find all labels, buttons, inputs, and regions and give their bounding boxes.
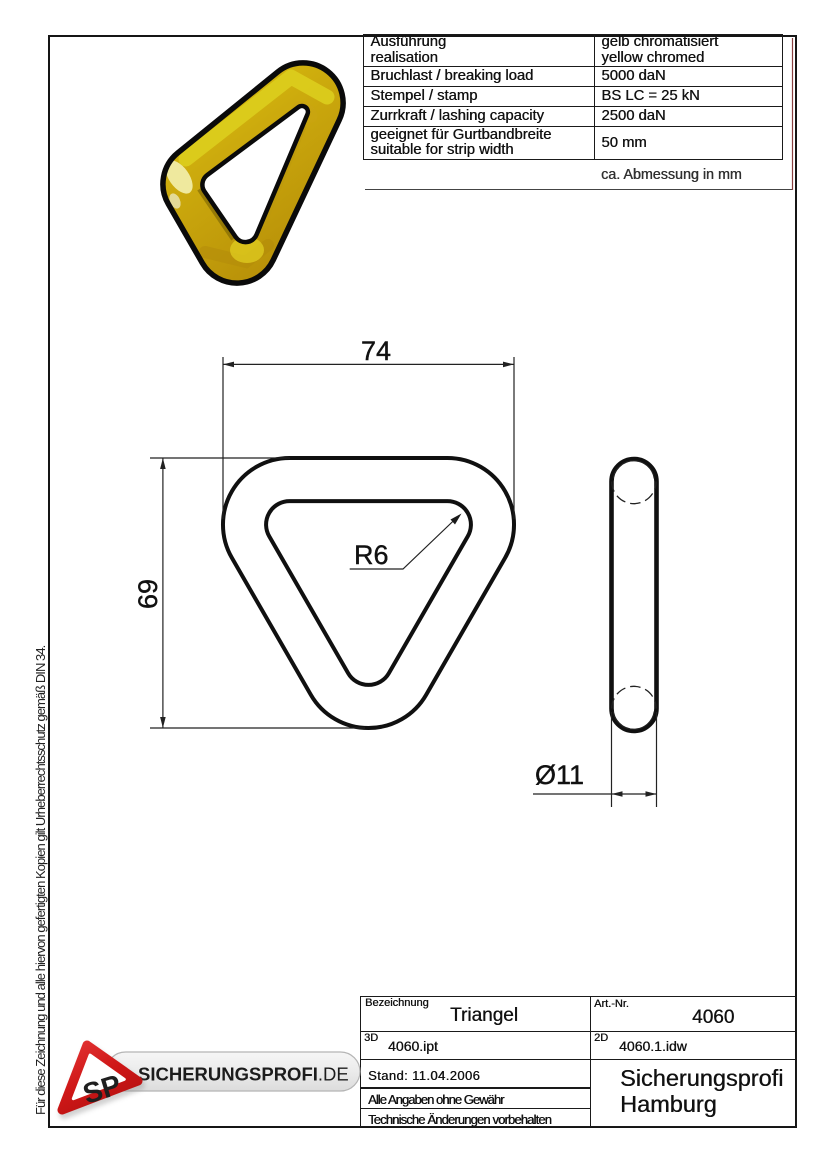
svg-text:Ø11: Ø11 (535, 760, 584, 790)
svg-text:SICHERUNGSPROFI.DE: SICHERUNGSPROFI.DE (138, 1064, 349, 1085)
svg-text:74: 74 (361, 336, 391, 366)
svg-text:R6: R6 (354, 540, 389, 570)
svg-text:69: 69 (133, 579, 163, 609)
